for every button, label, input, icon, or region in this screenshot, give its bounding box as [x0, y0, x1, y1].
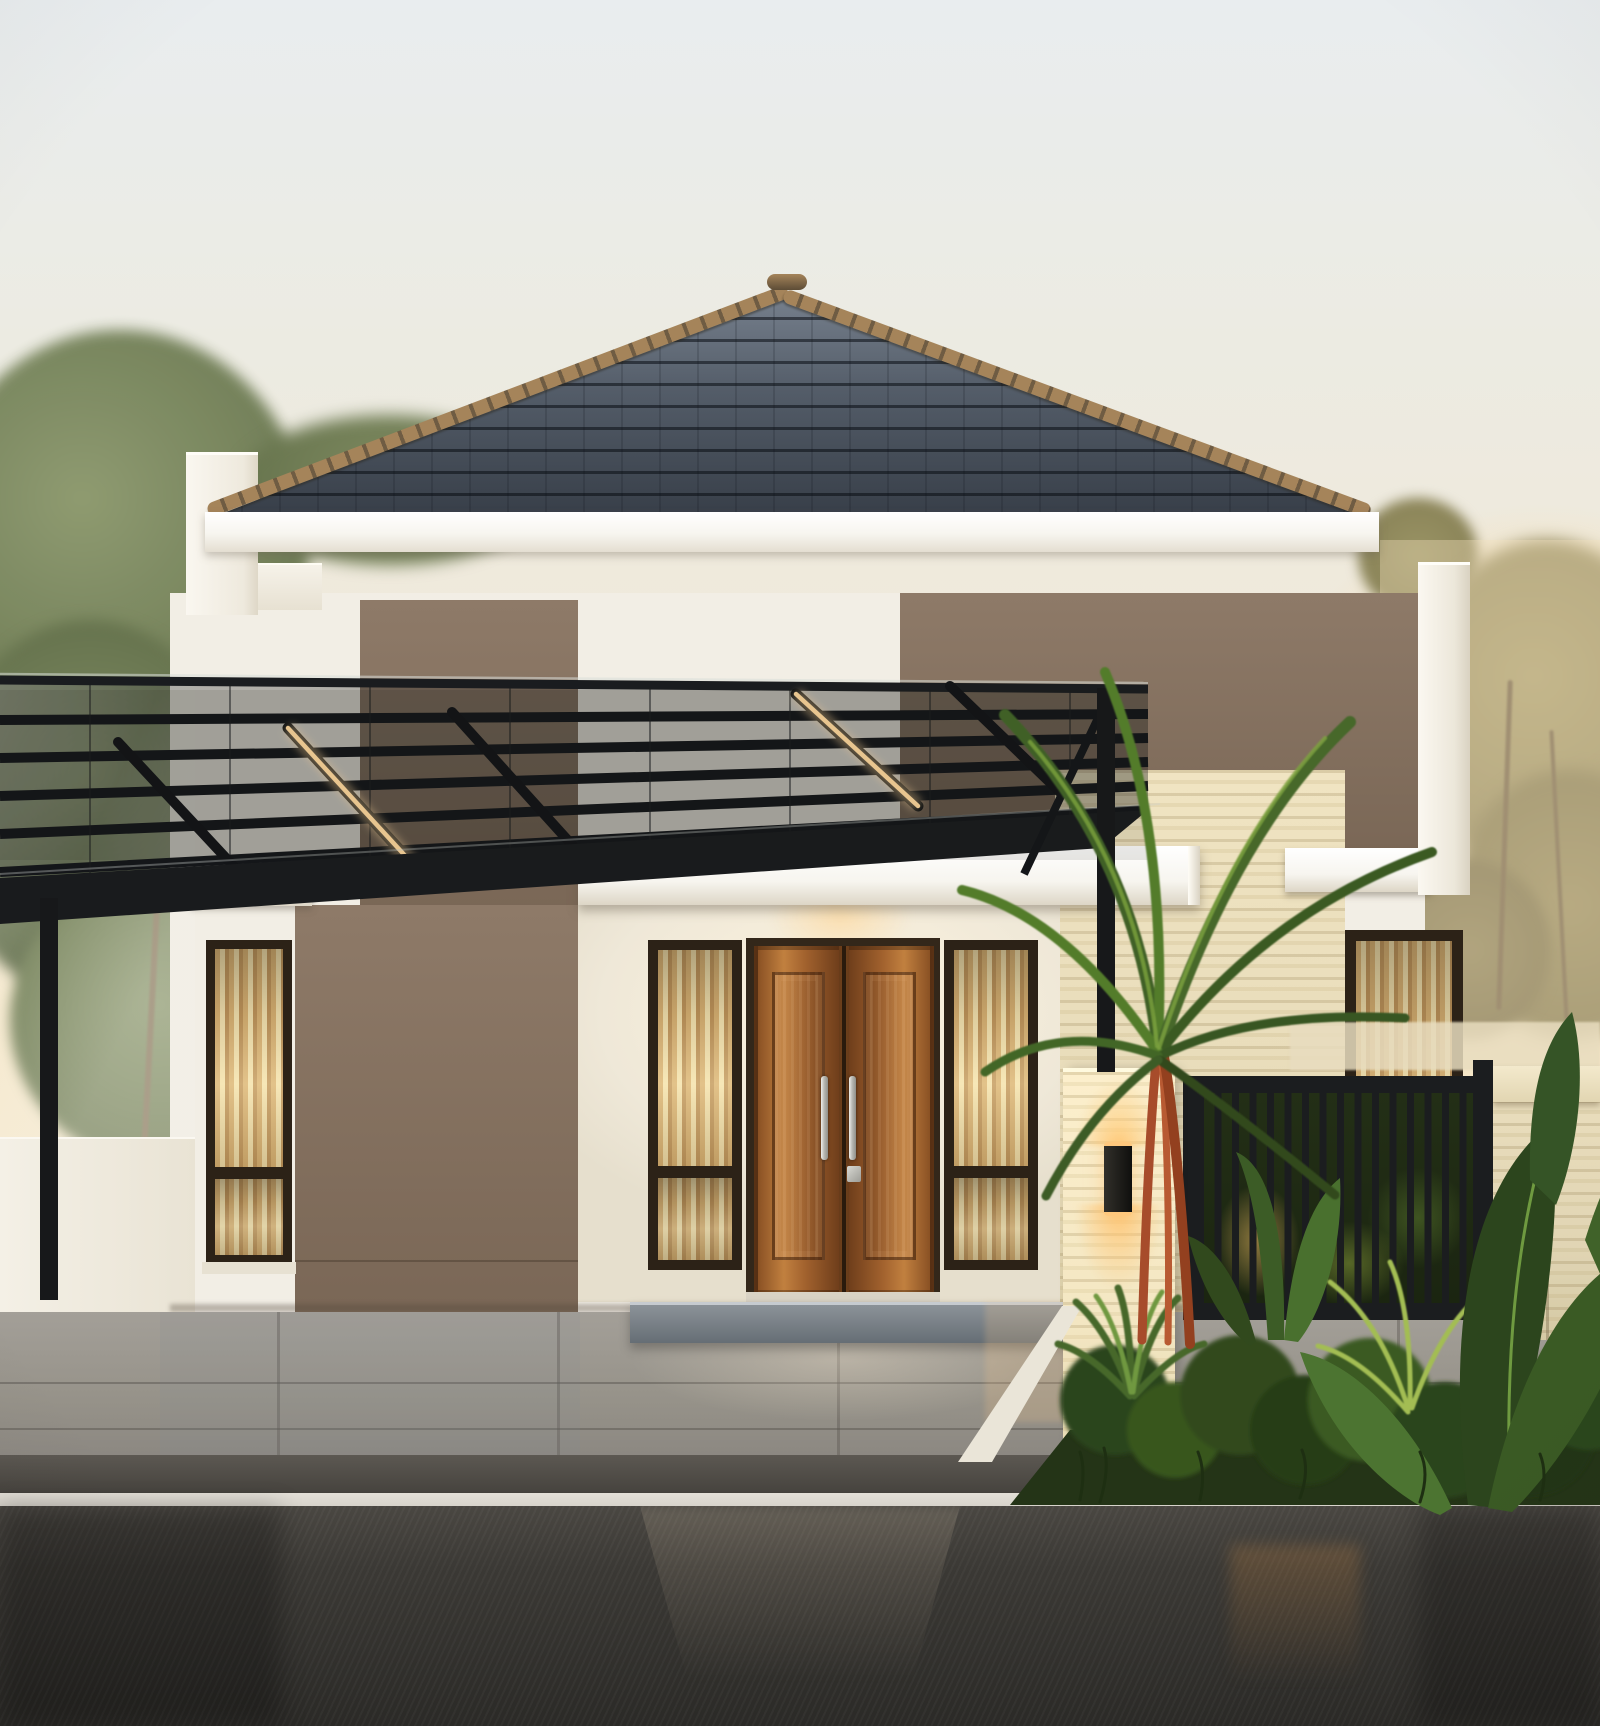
house-exterior-photo	[0, 0, 1600, 1726]
tropical-garden	[0, 0, 1600, 1726]
